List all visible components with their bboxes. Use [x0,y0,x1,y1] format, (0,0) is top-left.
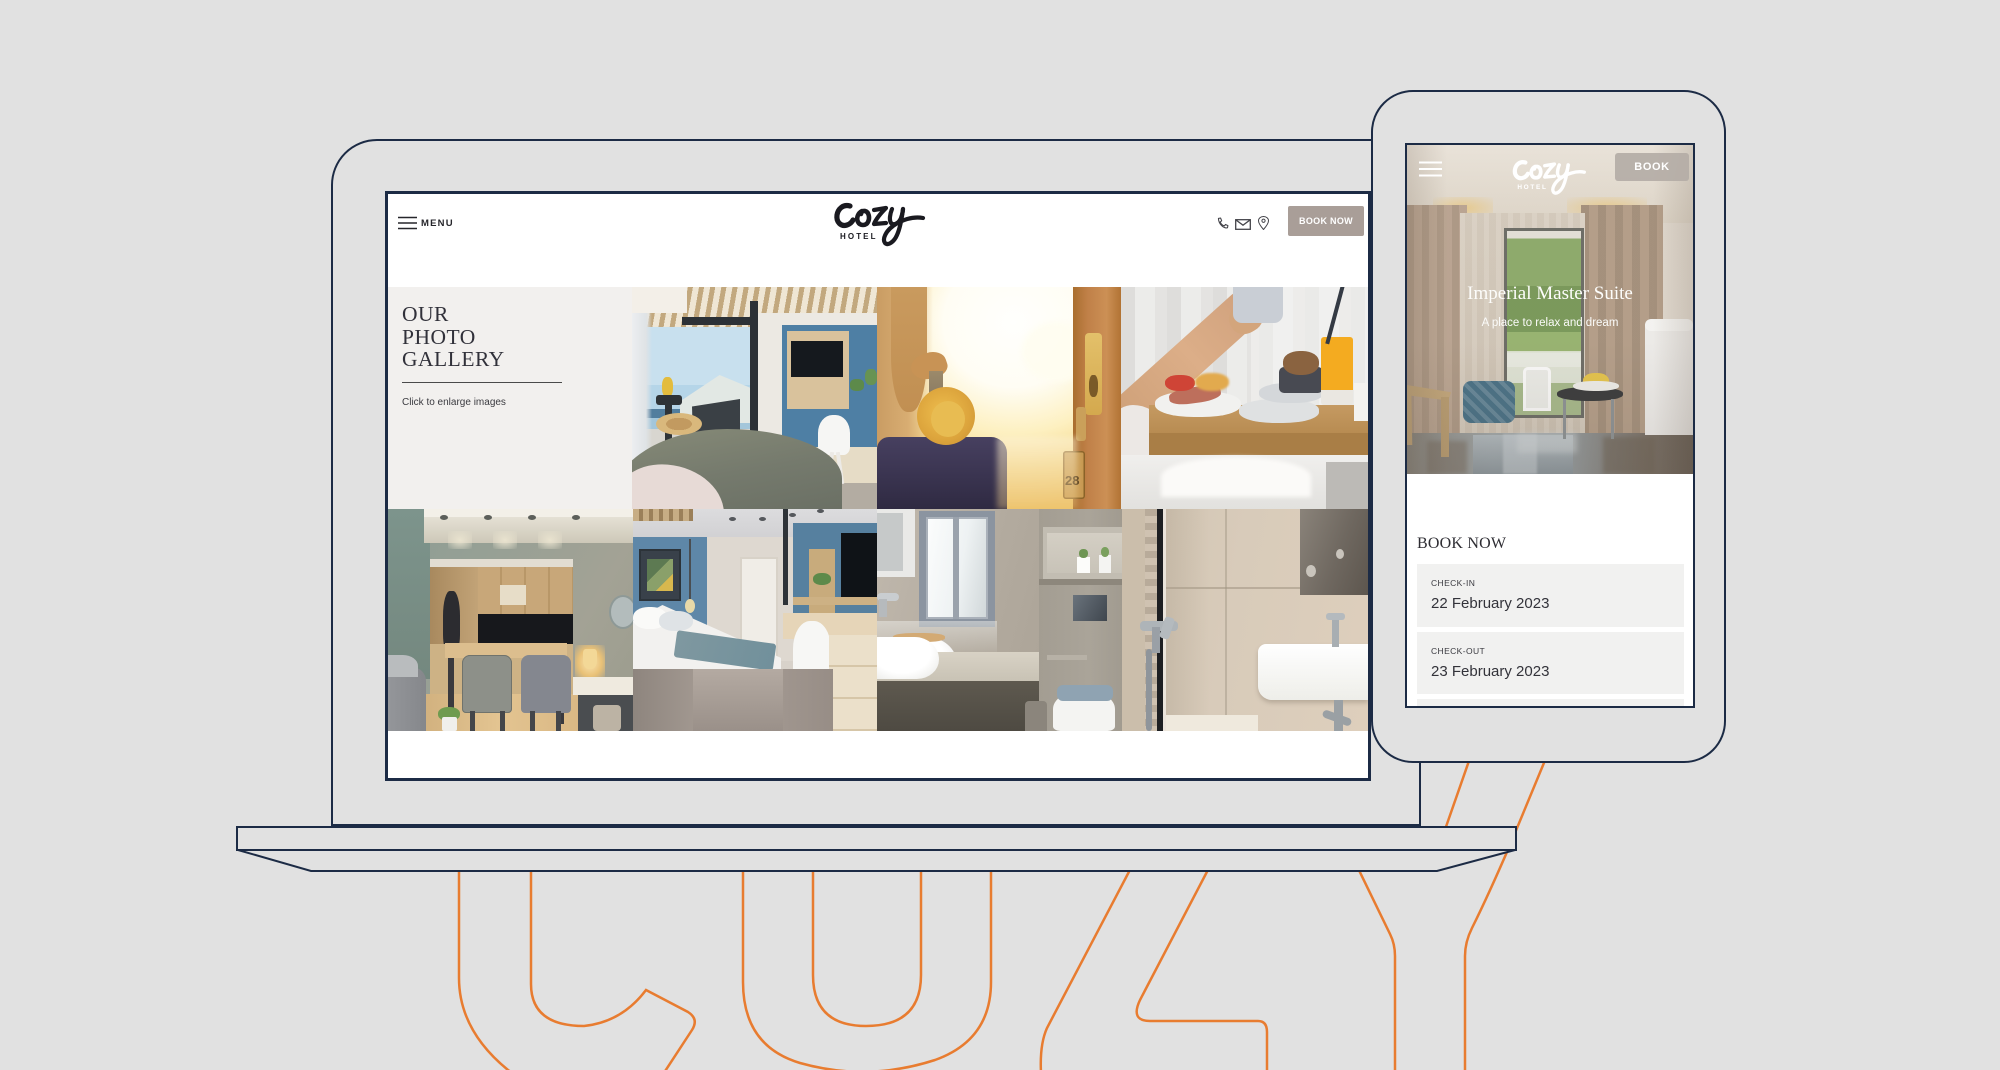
svg-text:HOTEL: HOTEL [1517,184,1547,191]
